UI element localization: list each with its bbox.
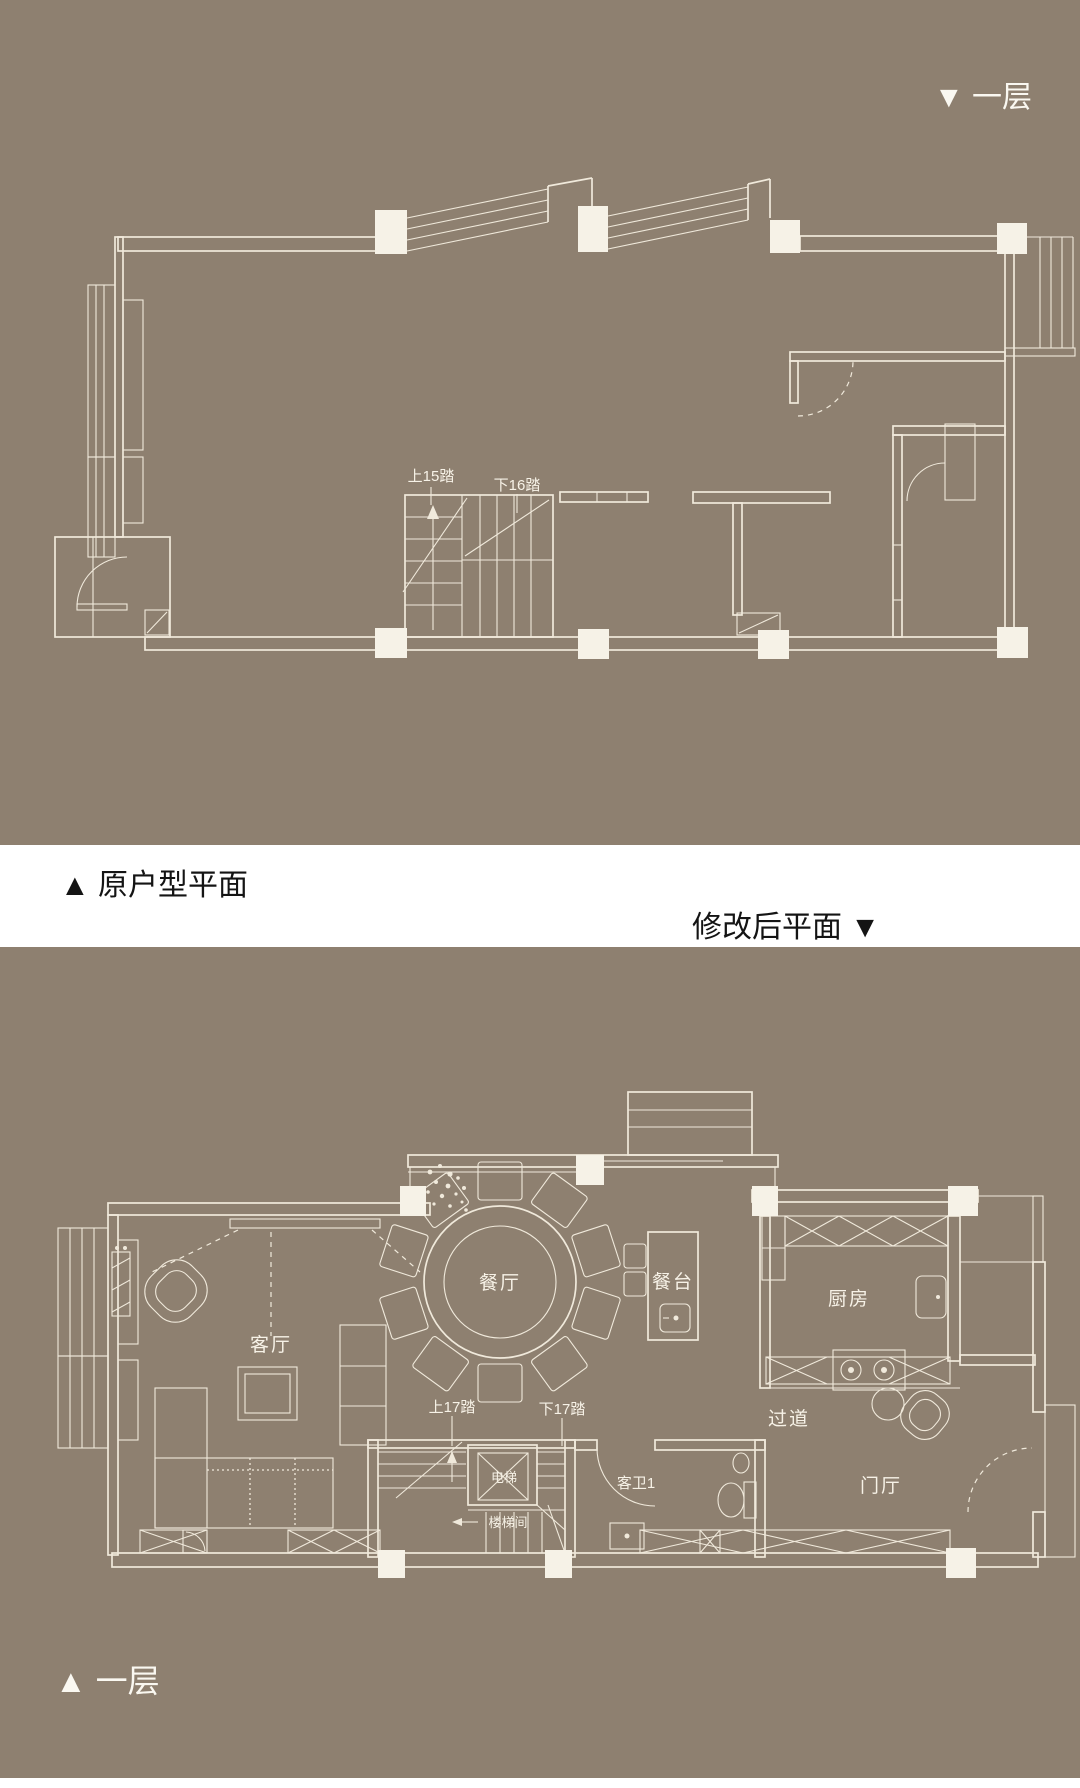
room-label-stairwell: 楼梯间 xyxy=(488,1515,527,1530)
label-stairs-down-17: 下17踏 xyxy=(539,1401,586,1418)
room-label-living: 客厅 xyxy=(250,1334,292,1356)
label-stairs-up-15: 上15踏 xyxy=(408,468,455,485)
original-plan-caption: ▲ 原户型平面 xyxy=(60,860,248,904)
room-label-guest-bath: 客卫1 xyxy=(617,1475,655,1492)
label-stairs-up-17: 上17踏 xyxy=(429,1399,476,1416)
label-stairs-down-16: 下16踏 xyxy=(494,477,541,494)
divider-band: ▲ 原户型平面 修改后平面 ▼ xyxy=(0,845,1080,947)
room-label-dining: 餐厅 xyxy=(479,1272,521,1294)
floor-plan-page: ▼ 一层 xyxy=(0,0,1080,1788)
plant xyxy=(426,1164,468,1212)
room-label-bar: 餐台 xyxy=(652,1271,694,1293)
guest-bathroom xyxy=(575,1440,765,1557)
room-label-elevator: 电梯 xyxy=(491,1470,517,1485)
room-label-corridor: 过道 xyxy=(768,1408,810,1430)
stair-elevator-block xyxy=(368,1416,575,1557)
modified-plan-caption: 修改后平面 ▼ xyxy=(692,902,880,946)
original-floor-plan: 上15踏 下16踏 xyxy=(55,178,1075,659)
bottom-plan-tag: ▲ 一层 xyxy=(55,1656,160,1702)
living-sill-cabinets xyxy=(140,1530,380,1553)
room-label-kitchen: 厨房 xyxy=(828,1288,870,1310)
bottom-border-strip xyxy=(0,1778,1080,1788)
original-staircase xyxy=(403,487,553,637)
modified-floor-plan: 餐厅 餐台 厨房 客厅 过道 门厅 客卫1 上17踏 下17踏 电梯 楼梯间 xyxy=(58,1092,1075,1578)
room-label-foyer: 门厅 xyxy=(860,1475,902,1497)
